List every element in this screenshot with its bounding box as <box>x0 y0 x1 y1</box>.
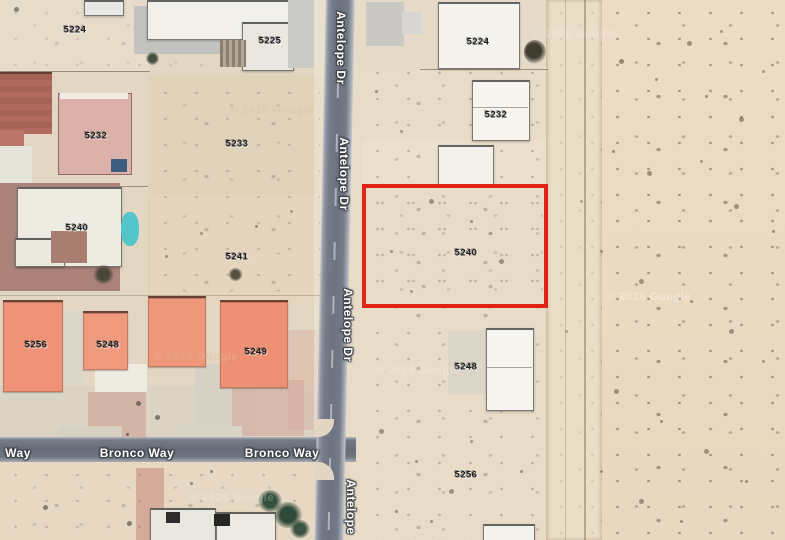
google-watermark: © 2020 Google <box>376 365 460 377</box>
building-red-roof <box>0 130 24 146</box>
concrete-pad <box>288 0 314 68</box>
street-label-antelope-dr: Antelope Dr <box>341 288 355 362</box>
parcel-label: 5256 <box>455 470 478 481</box>
google-watermark: © 2026 Google <box>190 492 274 504</box>
palm-tree <box>146 52 159 65</box>
tree <box>93 265 114 284</box>
tree <box>228 268 243 281</box>
building <box>438 2 520 69</box>
pergola <box>220 40 246 67</box>
parcel-label: 5256 <box>25 340 48 351</box>
concrete-pad <box>366 2 404 46</box>
parcel-label: 5248 <box>97 340 120 351</box>
google-watermark: © 2026 Google <box>230 104 314 116</box>
parcel-label-highlighted: 5240 <box>455 248 478 259</box>
building <box>483 524 535 540</box>
street-label-antelope-dr: Antelope Dr <box>334 11 348 85</box>
building-wing <box>242 22 294 71</box>
parcel-label: 5232 <box>85 131 108 142</box>
street-label-antelope: Antelope <box>344 479 358 534</box>
building <box>438 145 494 185</box>
shrub-texture <box>602 0 785 540</box>
parcel-label: 5240 <box>66 223 89 234</box>
building-orange-roof <box>220 300 288 388</box>
shrub-texture <box>546 0 602 540</box>
pool <box>121 212 139 246</box>
roof-line <box>472 107 528 108</box>
parcel-label: 5224 <box>64 25 87 36</box>
parcel-label: 5225 <box>259 36 282 47</box>
lot-line <box>420 69 548 70</box>
concrete-pad <box>402 12 422 34</box>
shrub-dots <box>0 0 3 3</box>
tree <box>524 40 546 64</box>
roof-line <box>486 367 532 368</box>
building <box>150 508 216 540</box>
parcel-label: 5233 <box>226 139 249 150</box>
satellite-map[interactable]: Antelope Dr Antelope Dr Antelope Dr Ante… <box>0 0 785 540</box>
parcel-label: 5232 <box>485 110 508 121</box>
roof-panel <box>214 514 230 526</box>
google-watermark: © 2026 Google <box>607 291 691 303</box>
street-label-way: Way <box>5 446 31 460</box>
street-label-bronco-way: Bronco Way <box>100 446 175 460</box>
google-watermark: © 2026 Google <box>154 351 238 363</box>
building <box>486 328 534 411</box>
street-label-antelope-dr: Antelope Dr <box>337 137 351 211</box>
google-watermark: © 2020 Google <box>533 28 617 40</box>
parcel-label: 5241 <box>226 252 249 263</box>
courtyard <box>51 231 87 263</box>
driveway-gap <box>64 310 83 384</box>
roof-panel <box>166 512 180 523</box>
street-label-bronco-way: Bronco Way <box>245 446 320 460</box>
building-red-roof <box>0 72 52 134</box>
parcel-label: 5224 <box>467 37 490 48</box>
building <box>84 0 124 16</box>
building-trim <box>60 93 128 99</box>
parcel-highlight-rectangle <box>362 184 548 308</box>
pool-equipment <box>111 159 127 172</box>
palm-tree <box>290 520 310 538</box>
parcel-label: 5249 <box>245 347 268 358</box>
patio <box>0 146 32 184</box>
